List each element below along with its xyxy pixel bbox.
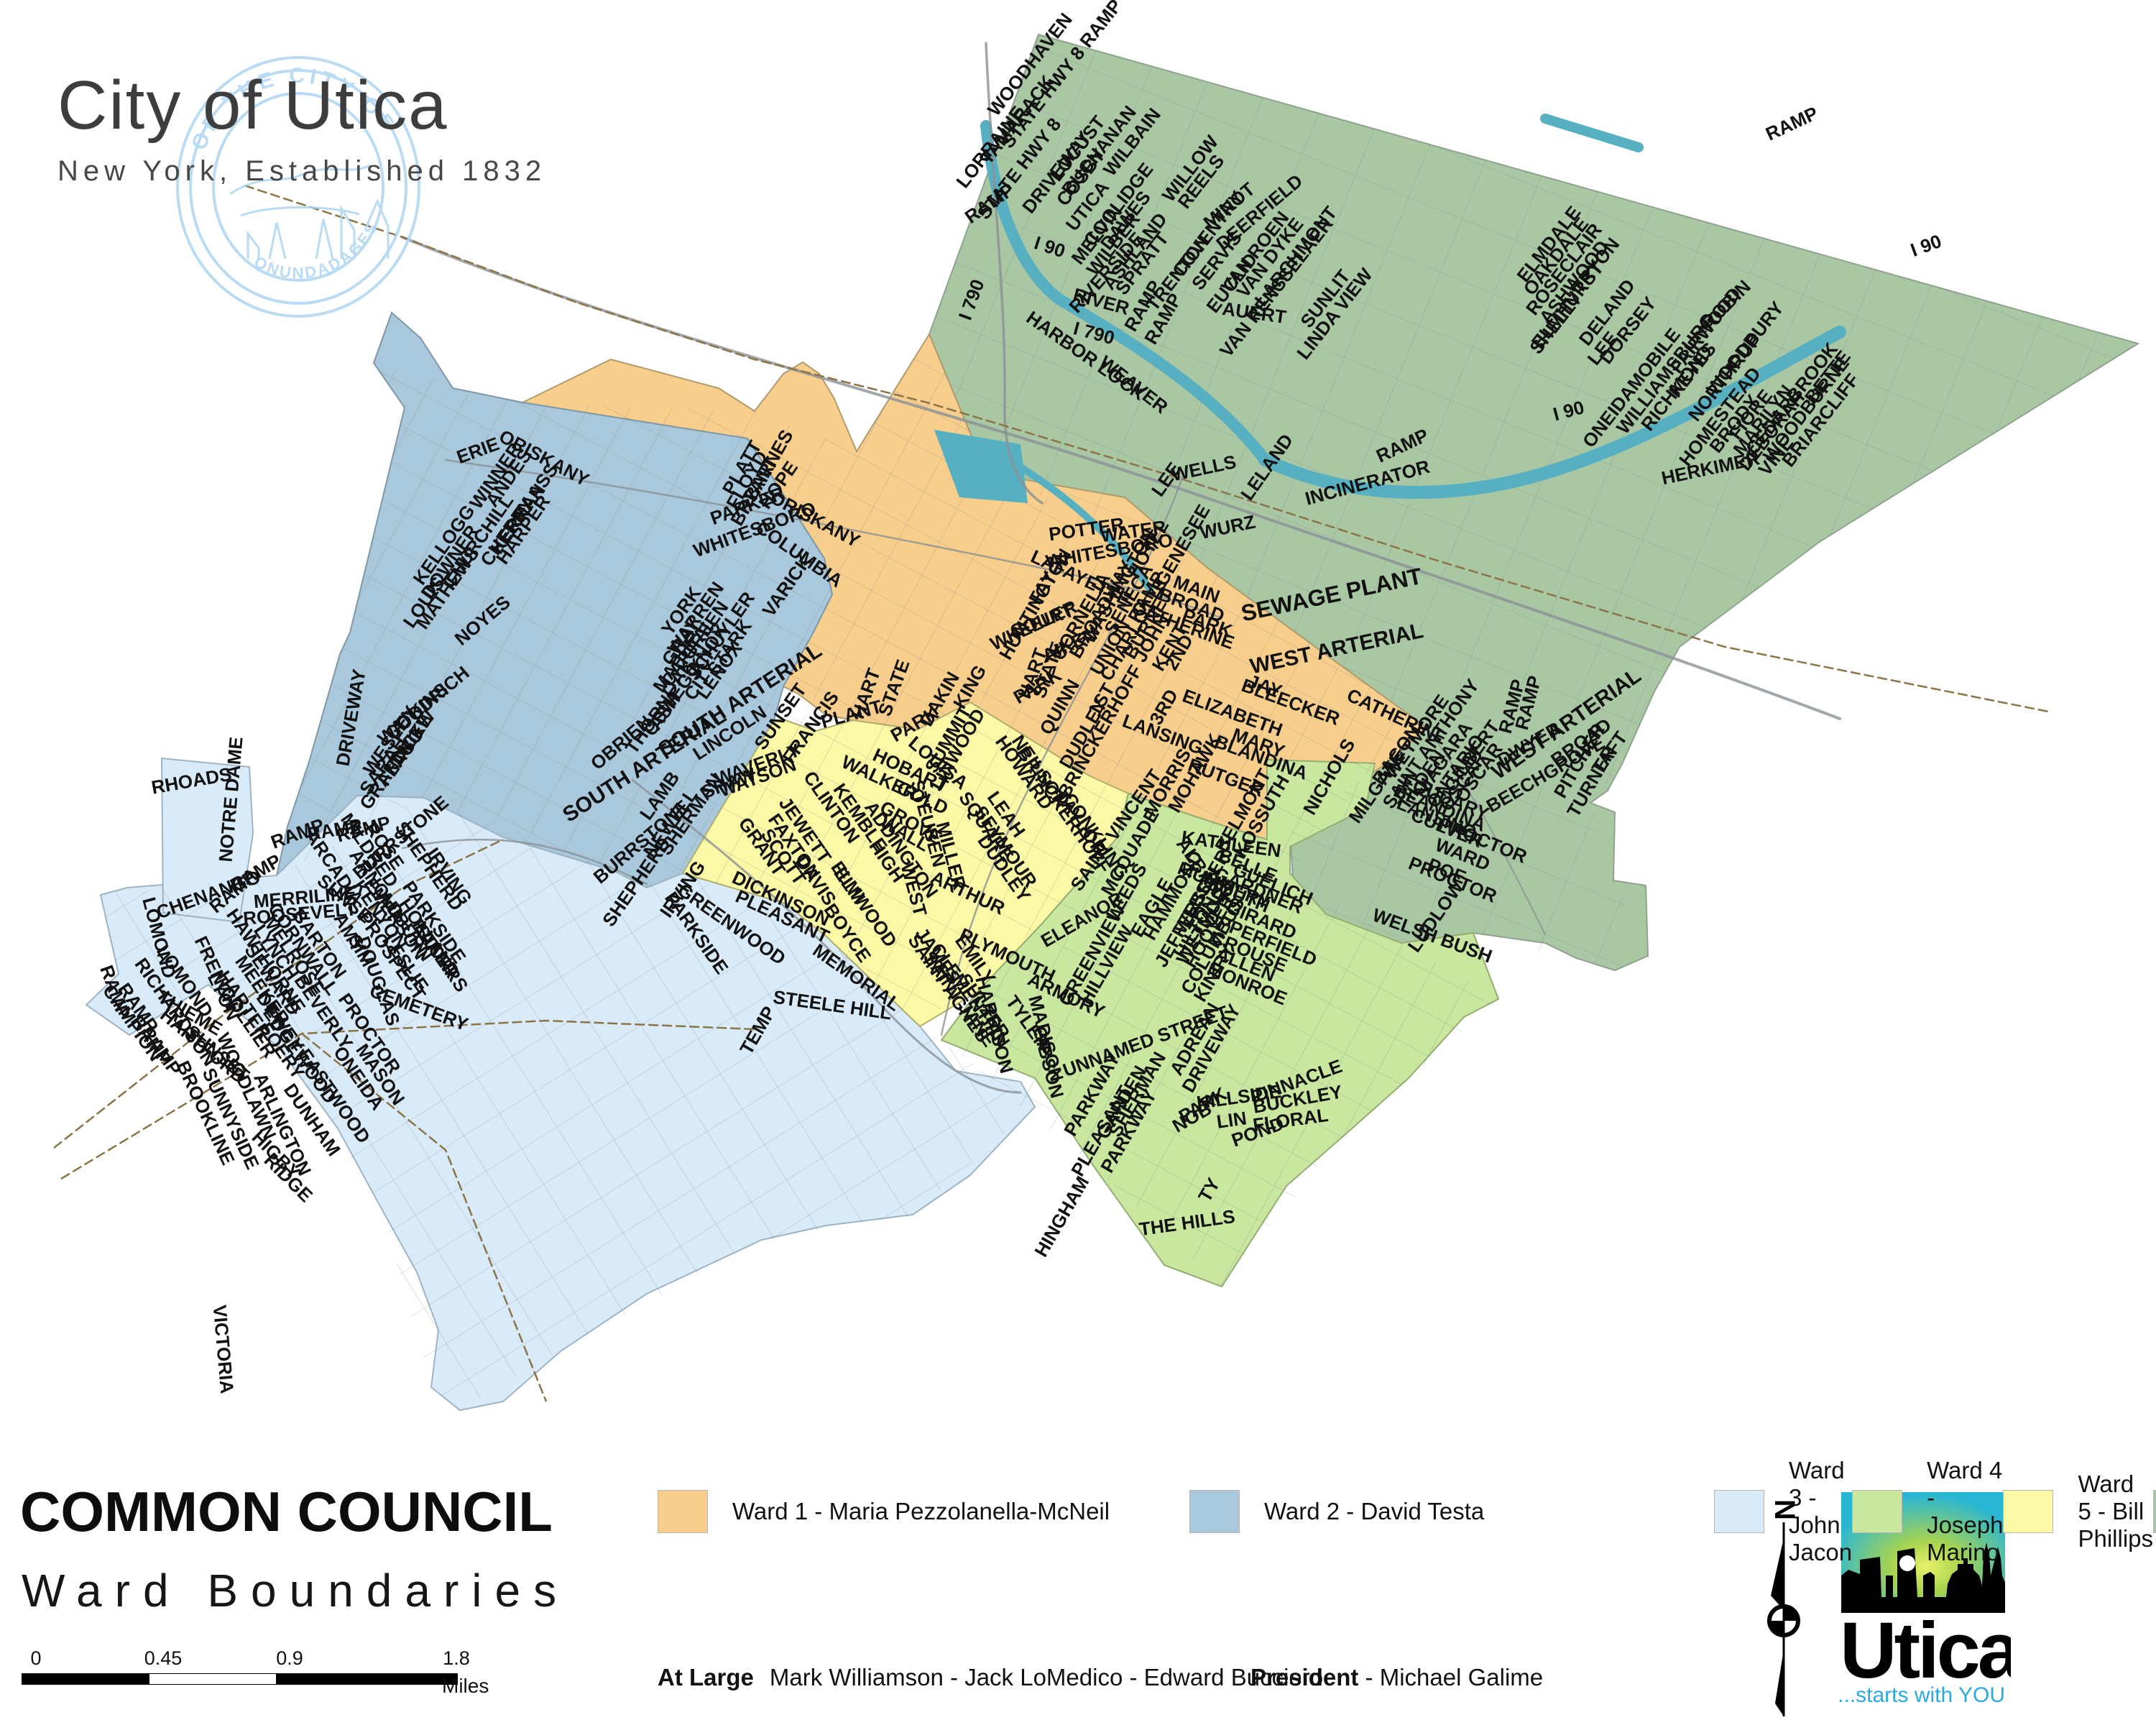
scale-tick: 1.8 (443, 1647, 470, 1670)
legend-label-ward1: Ward 1 - Maria Pezzolanella-McNeil (732, 1498, 1110, 1525)
footer-subheading: Ward Boundaries (22, 1564, 569, 1617)
legend-swatch-ward1 (658, 1490, 708, 1533)
logo-wordmark: Utica (1840, 1606, 2011, 1695)
legend: Ward 1 - Maria Pezzolanella-McNeilWard 2… (658, 1481, 2156, 1542)
legend-row-ward4[interactable]: Ward 4 - Joseph Marino (1852, 1481, 2003, 1542)
legend-label-ward2: Ward 2 - David Testa (1264, 1498, 1484, 1525)
scale-unit: Miles (442, 1675, 489, 1698)
page-title: City of Utica (57, 66, 546, 145)
legend-swatch-ward2 (1189, 1490, 1240, 1533)
scale-ticks: 0 0.45 0.9 1.8 (22, 1647, 568, 1670)
president-credit: President - Michael Galime (1250, 1664, 1543, 1691)
page: LORRAINETAMARACKWOODHAVENSTATE HWY 8 RAM… (0, 0, 2156, 1725)
legend-row-ward6[interactable]: Ward 6 - Samantha Colosimo-Testa (2153, 1481, 2156, 1542)
legend-swatch-ward6 (2153, 1490, 2156, 1533)
president-label: President (1250, 1664, 1358, 1690)
scale-tick: 0 (30, 1647, 41, 1670)
street-label: I 90 (1907, 230, 1944, 261)
legend-swatch-ward3 (1714, 1490, 1764, 1533)
page-subtitle: New York, Established 1832 (57, 155, 546, 188)
legend-row-ward5[interactable]: Ward 5 - Bill Phillips (2003, 1481, 2153, 1542)
at-large-label: At Large (658, 1664, 754, 1691)
president-name: - Michael Galime (1358, 1664, 1543, 1690)
footer-heading: COMMON COUNCIL (20, 1479, 553, 1545)
legend-swatch-ward4 (1852, 1490, 1902, 1533)
scale-tick: 0.9 (276, 1647, 303, 1670)
street-label: RAMP (1762, 102, 1821, 145)
legend-swatch-ward5 (2003, 1490, 2053, 1533)
street-label: HINGHAM (1030, 1172, 1093, 1261)
legend-label-ward4: Ward 4 - Joseph Marino (1927, 1457, 2003, 1566)
logo-tagline: ...starts with YOU (1838, 1683, 2005, 1707)
street-label: VICTORIA (209, 1304, 239, 1394)
scale-bar-graphic (22, 1673, 458, 1685)
legend-row-ward2[interactable]: Ward 2 - David Testa (1189, 1481, 1714, 1542)
at-large-names: Mark Williamson - Jack LoMedico - Edward… (770, 1664, 1323, 1691)
legend-label-ward3: Ward 3 - John Jacon (1789, 1457, 1852, 1566)
scale-tick: 0.45 (144, 1647, 183, 1670)
legend-row-ward1[interactable]: Ward 1 - Maria Pezzolanella-McNeil (658, 1481, 1189, 1542)
at-large-credits: At Large Mark Williamson - Jack LoMedico… (658, 1664, 1323, 1691)
legend-row-ward3[interactable]: Ward 3 - John Jacon (1714, 1481, 1852, 1542)
legend-label-ward5: Ward 5 - Bill Phillips (2078, 1471, 2153, 1552)
